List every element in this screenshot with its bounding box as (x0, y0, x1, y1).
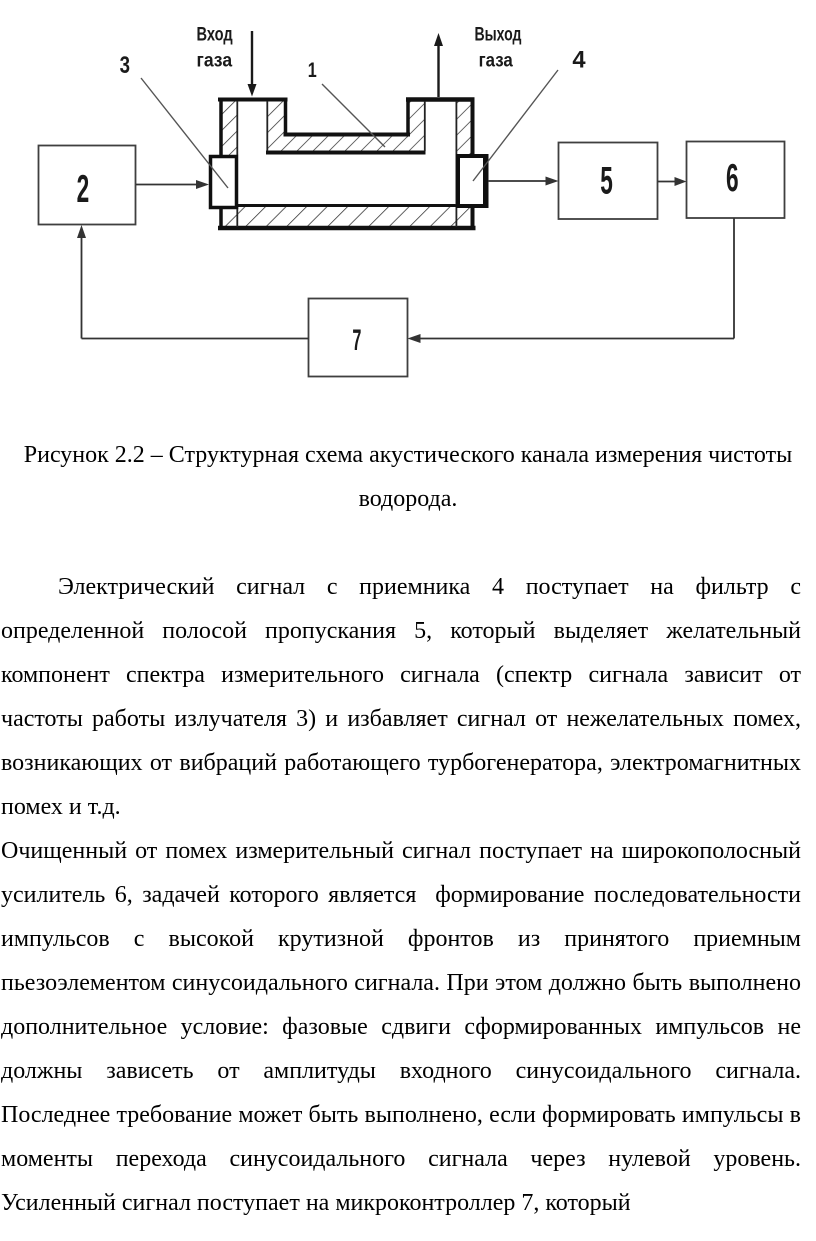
svg-text:2: 2 (77, 168, 90, 211)
svg-text:1: 1 (308, 59, 317, 82)
svg-text:Выход: Выход (475, 23, 522, 45)
svg-text:газа: газа (197, 49, 233, 71)
svg-text:газа: газа (479, 49, 513, 71)
svg-text:3: 3 (120, 52, 130, 79)
svg-text:Вход: Вход (197, 23, 234, 45)
svg-text:6: 6 (726, 157, 739, 200)
svg-text:5: 5 (600, 159, 613, 202)
svg-text:4: 4 (572, 47, 586, 74)
svg-text:7: 7 (352, 324, 361, 357)
